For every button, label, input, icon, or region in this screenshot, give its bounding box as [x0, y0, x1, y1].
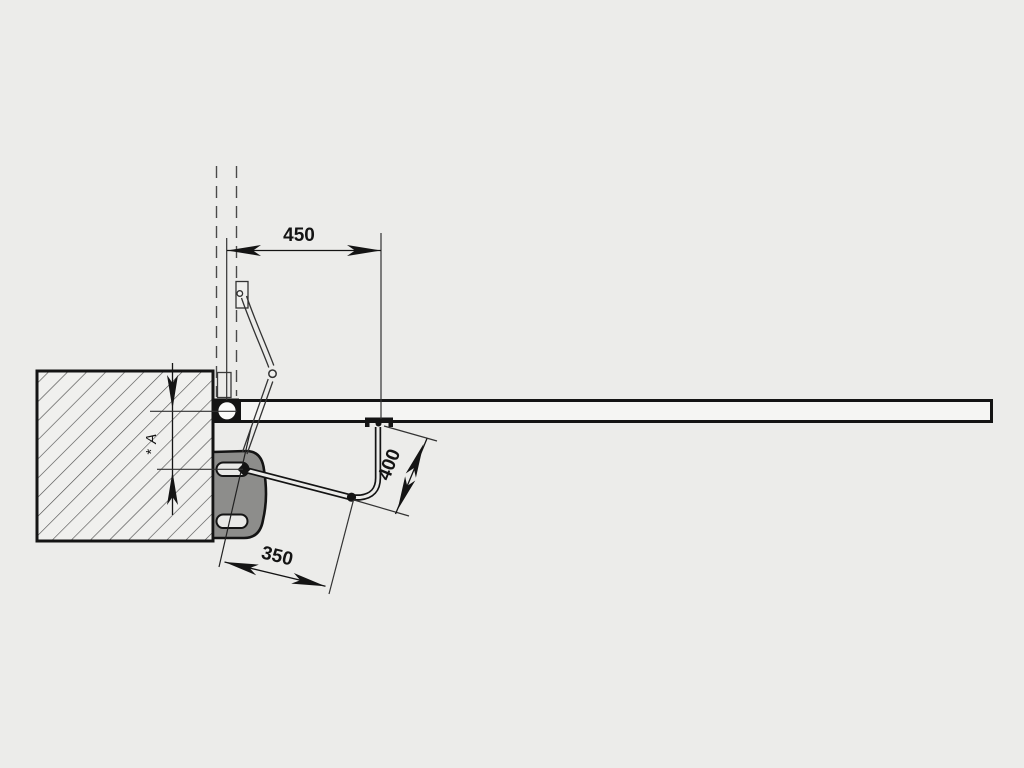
open-curved-arm-edge1 [242, 298, 269, 368]
operator-motor [213, 451, 266, 538]
open-curved-arm-edge2 [247, 296, 274, 366]
dim-400-arrow-top [406, 444, 424, 478]
pillar-section [37, 371, 213, 541]
technical-diagram-page: 450 400 350 * A [0, 0, 1024, 768]
dim-400-extension-top [384, 426, 437, 441]
arm-open-position [236, 282, 276, 455]
dimension-label-a: * A [142, 420, 162, 468]
dimension-450 [227, 233, 381, 419]
installation-drawing [0, 0, 1024, 768]
arm-curved-outer [352, 427, 379, 498]
dim-400-arrow-bottom [398, 476, 416, 510]
hinge-upper-plate [218, 373, 232, 398]
gate-bracket-pivot [376, 421, 382, 427]
open-elbow-joint [269, 370, 276, 377]
open-bracket-pivot [237, 291, 243, 297]
motor-lower-slot [217, 515, 248, 529]
dim-350-extension-right [329, 500, 354, 594]
gate-bracket-closed [365, 418, 393, 428]
gate-leaf [240, 401, 992, 422]
dimension-label-450: 450 [275, 226, 323, 246]
